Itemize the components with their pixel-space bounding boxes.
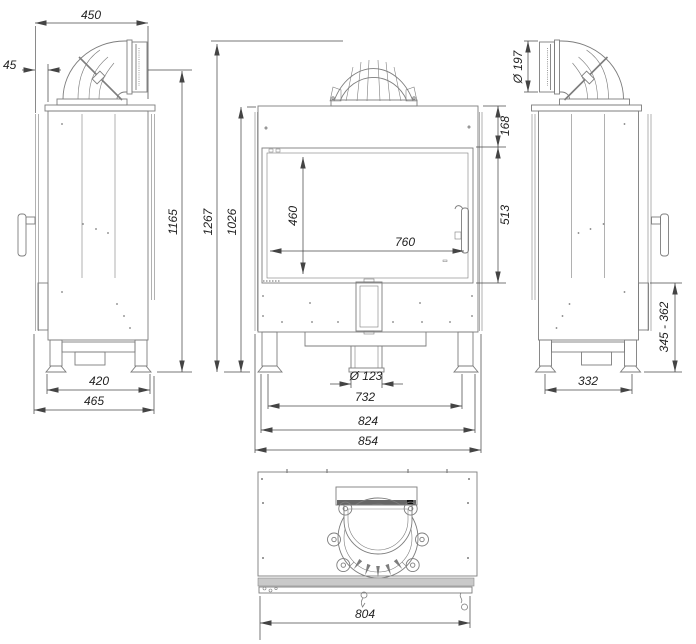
- door-handle-right-icon: [652, 214, 669, 256]
- dim-1165-label: 1165: [166, 209, 180, 235]
- dim-345-362-label: 345 - 362: [657, 301, 671, 352]
- fireplace-technical-drawing: 450 45 1165 420 465: [0, 0, 696, 644]
- side-view-right: [532, 40, 669, 372]
- top-view: [258, 469, 477, 610]
- flue-elbow-right-icon: [540, 40, 630, 105]
- flue-collar-front-icon: [330, 60, 417, 106]
- base-right: [536, 340, 641, 372]
- door-chain-icon: [460, 593, 467, 610]
- dim-45-label: 45: [3, 58, 17, 72]
- front-edge-strip: [258, 578, 474, 586]
- side-view-left: [18, 26, 155, 372]
- ashpan-cover-right: [639, 283, 649, 330]
- dim-450-label: 450: [81, 8, 101, 22]
- ashpan-cover-left: [38, 283, 48, 330]
- door-handle-left-icon: [18, 214, 35, 256]
- dim-465-label: 465: [84, 394, 104, 408]
- flue-elbow-left-icon: [57, 40, 147, 105]
- foot-icon: [258, 366, 282, 372]
- door-handle-front-icon: [455, 206, 469, 253]
- dim-513-label: 513: [498, 205, 512, 225]
- base-front: [258, 332, 478, 372]
- dim-1026-label: 1026: [225, 208, 239, 235]
- dim-dia-123-label: Ø 123: [349, 369, 383, 383]
- dim-168-label: 168: [498, 116, 512, 136]
- flange-ribs: [354, 559, 403, 578]
- firebox-body-right: [532, 105, 652, 340]
- foot-icon: [46, 366, 66, 372]
- flue-flange-top-icon: [328, 498, 429, 578]
- dim-420-label: 420: [89, 374, 109, 388]
- base-left: [46, 340, 151, 372]
- dimensions-front-view: 1267 1026 168 513 460 760 Ø 123 732 824 …: [201, 41, 512, 453]
- dim-824-label: 824: [358, 414, 378, 428]
- dimensions-right-view: Ø 197 345 - 362 332: [511, 41, 682, 394]
- dim-460-label: 460: [286, 206, 300, 226]
- foot-icon: [454, 366, 478, 372]
- dim-760-label: 760: [395, 235, 415, 249]
- latch-box-front: [356, 279, 382, 334]
- foot-icon: [621, 366, 641, 372]
- dim-804-label: 804: [355, 607, 375, 621]
- technical-drawing-page: 450 45 1165 420 465: [0, 0, 696, 644]
- foot-icon: [536, 366, 556, 372]
- dim-732-label: 732: [355, 390, 375, 404]
- dim-1267-label: 1267: [201, 207, 215, 235]
- dim-332-label: 332: [578, 374, 598, 388]
- foot-icon: [131, 366, 151, 372]
- dim-dia-197-label: Ø 197: [511, 49, 525, 84]
- dimensions-left-view: 450 45 1165 420 465: [3, 8, 192, 414]
- dim-854-label: 854: [358, 434, 378, 448]
- dimensions-top-view: 804: [260, 596, 470, 640]
- latch-icon: [361, 592, 367, 607]
- hinge-pins-icon: [263, 587, 277, 592]
- screw-dots-front: [262, 295, 473, 323]
